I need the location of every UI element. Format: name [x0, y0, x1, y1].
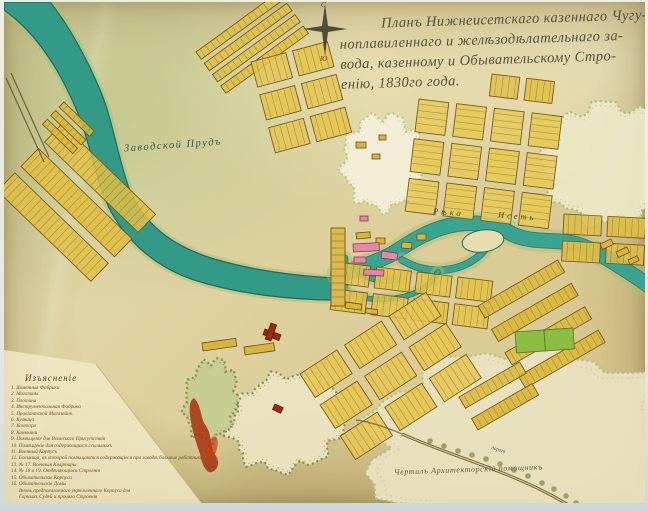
factory-building: [360, 216, 368, 221]
city-block: [456, 277, 493, 302]
road: [11, 73, 49, 157]
city-block-group: [405, 99, 562, 229]
city-block-group: [251, 42, 352, 153]
road: [6, 78, 44, 162]
building: [401, 242, 411, 249]
river-label-word1: Рѣка: [433, 206, 465, 218]
legend-note-line: Горныхъ Судей и прочаго Строенія: [19, 494, 251, 500]
roadside-tree: [483, 456, 489, 462]
building: [244, 343, 275, 355]
compass-north-label: С: [321, 2, 326, 9]
roadside-tree: [469, 452, 475, 458]
factory-building: [353, 243, 379, 252]
compass-south-label: Ю: [320, 55, 327, 63]
map-photo: Планъ Нижнеисетскаго казеннаго Чугу- ноп…: [0, 0, 648, 512]
legend-title: Изъясненіе: [25, 373, 251, 383]
city-block-group: [196, 2, 308, 93]
roadside-tree: [455, 448, 461, 454]
roadside-tree: [525, 473, 531, 479]
building: [356, 232, 370, 239]
green-plot: [515, 330, 545, 353]
factory-building: [364, 269, 384, 276]
roadside-tree: [441, 443, 447, 449]
roadside-tree: [539, 480, 545, 486]
building: [417, 234, 426, 240]
map-title: Планъ Нижнеисетскаго казеннаго Чугу- ноп…: [339, 5, 645, 95]
building: [356, 142, 366, 148]
roadside-tree: [551, 486, 557, 492]
roadside-tree: [427, 438, 433, 444]
city-block: [415, 272, 452, 297]
legend-panel: Изъясненіе 1. Доменныя Фабрики 2. Магази…: [11, 373, 251, 500]
dam: [331, 228, 345, 306]
roadside-tree: [563, 493, 569, 499]
green-plot: [544, 328, 574, 351]
map-canvas: Планъ Нижнеисетскаго казеннаго Чугу- ноп…: [4, 2, 645, 503]
factory-building: [354, 257, 366, 263]
building: [202, 338, 237, 351]
building: [379, 135, 386, 140]
building: [372, 154, 380, 159]
